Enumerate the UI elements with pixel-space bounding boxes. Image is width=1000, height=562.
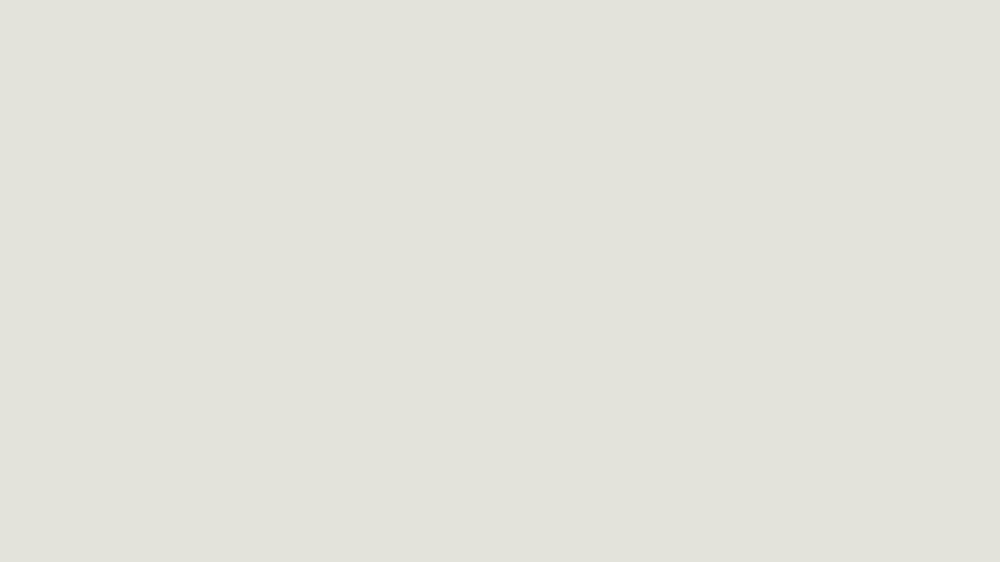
aerial-resort-pool-photo	[0, 0, 1000, 562]
